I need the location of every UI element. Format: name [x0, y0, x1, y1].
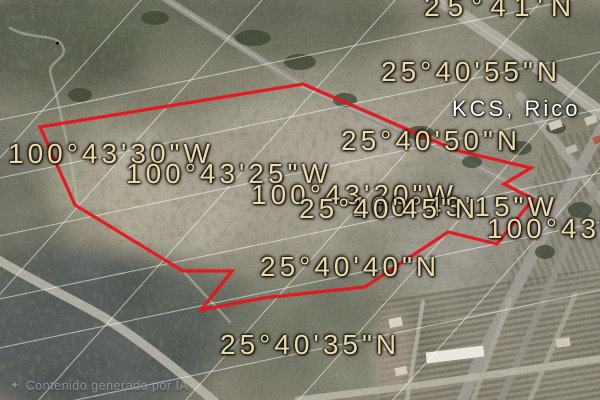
satellite-map-view: 100°43'30"W 100°43'25"W 100°43'20"W 100°…: [0, 0, 600, 400]
satellite-imagery-canvas[interactable]: [0, 0, 600, 400]
